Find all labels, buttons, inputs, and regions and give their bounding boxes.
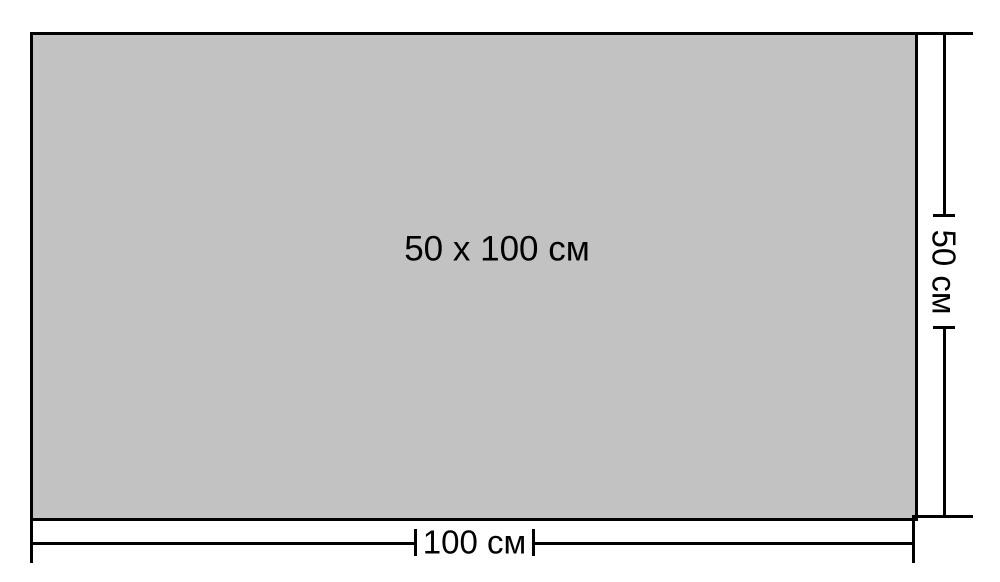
- diagram-canvas: 50 x 100 см 100 см 50 см: [0, 0, 1000, 582]
- height-dimension-tick-top: [933, 214, 955, 217]
- width-dimension-line-left: [30, 542, 415, 545]
- size-label: 50 x 100 см: [404, 232, 590, 267]
- height-dimension-line-top: [943, 32, 946, 216]
- height-dimension-label: 50 см: [928, 229, 961, 314]
- height-dimension-tick-bottom: [933, 326, 955, 329]
- width-dimension-line-right: [534, 542, 915, 545]
- height-dimension-line-bottom: [943, 327, 946, 518]
- extension-line-bottom-right: [912, 518, 915, 563]
- rectangle-panel: [30, 32, 918, 521]
- width-dimension-label: 100 см: [415, 526, 534, 559]
- extension-line-bottom-left: [30, 518, 33, 563]
